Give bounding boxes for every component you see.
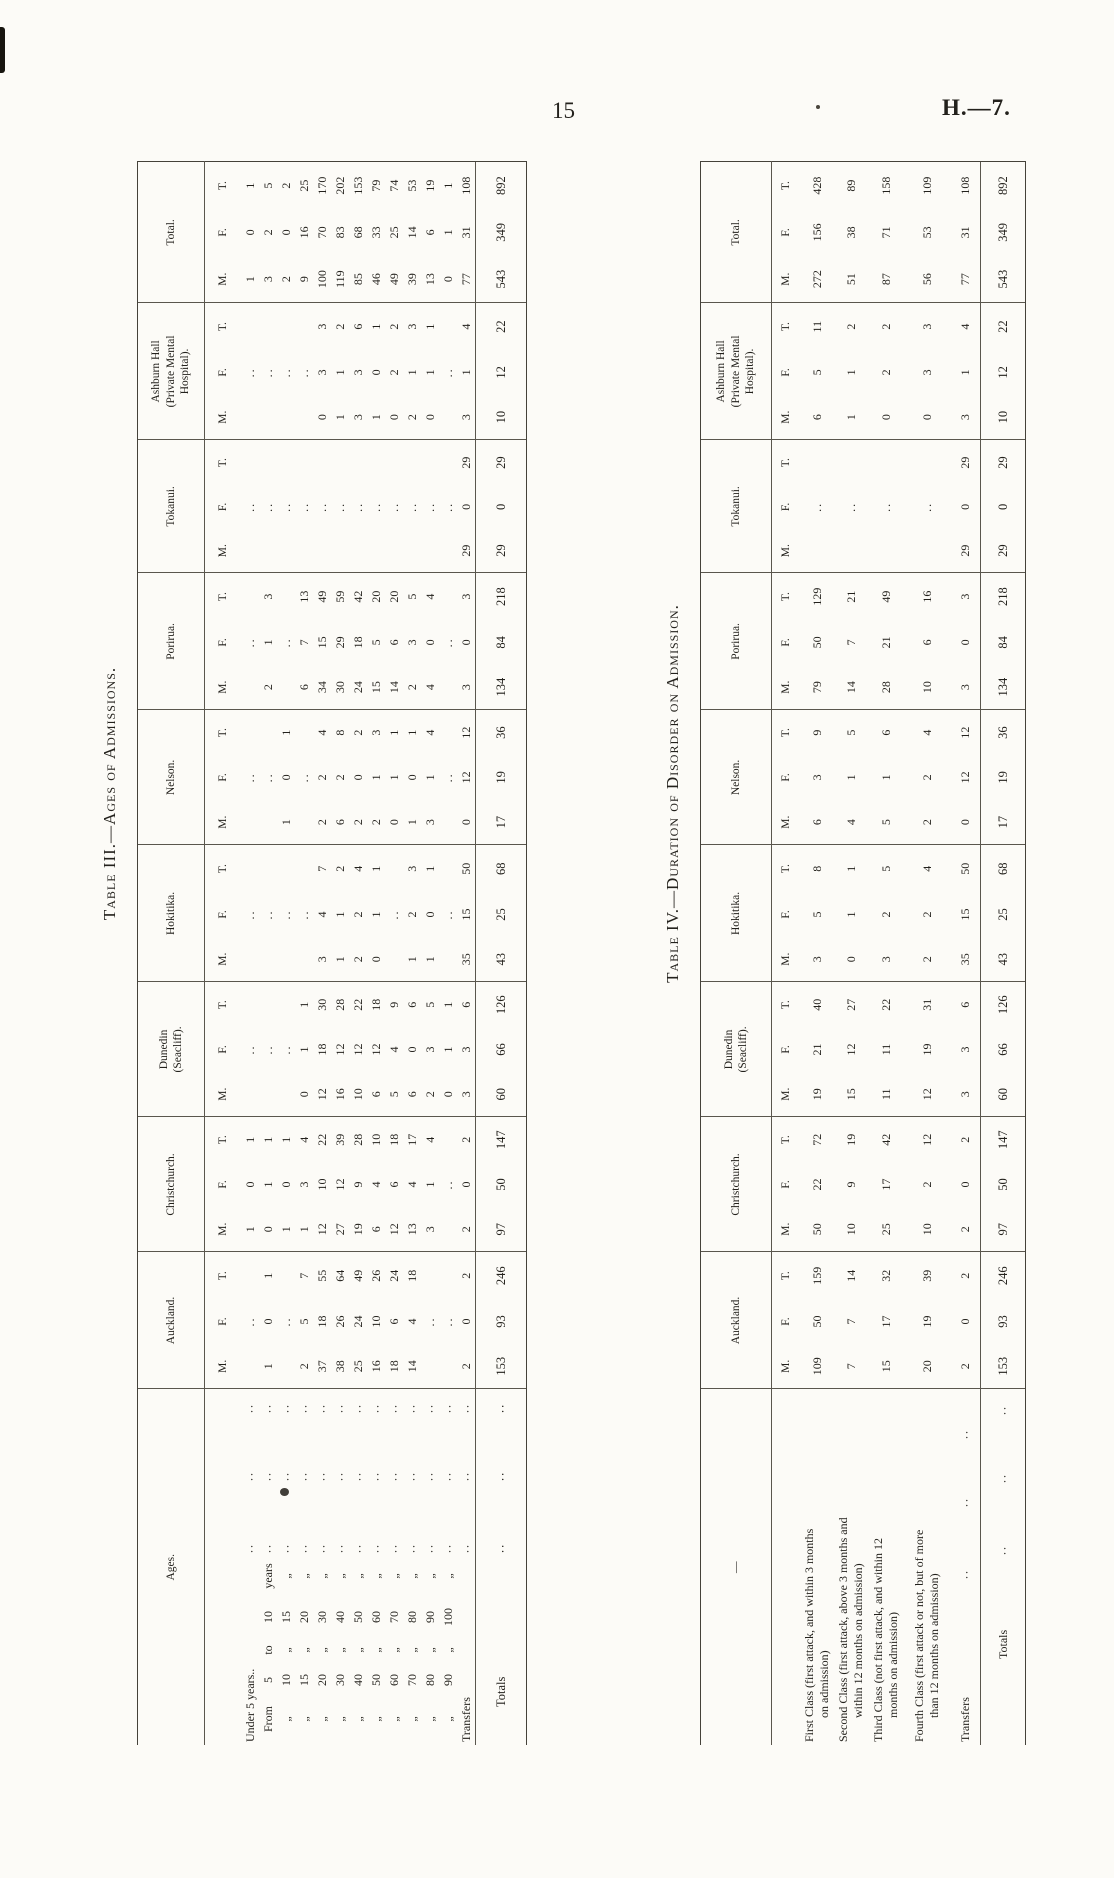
label-seg: „ <box>315 1696 330 1742</box>
leader-dots: .. <box>403 1543 418 1553</box>
cell-nelson-t: 4 <box>421 710 439 755</box>
cell-auckland-m: 7 <box>834 1344 868 1389</box>
cell-nelson-m: 17 <box>476 800 527 845</box>
cell-auckland-t: 18 <box>403 1252 421 1299</box>
cell-ashburn-hall-t: 6 <box>349 303 367 350</box>
cell-nelson-t: 6 <box>868 710 904 755</box>
cell-tokanui-t <box>349 440 367 485</box>
sub-header-nelson-f: F. <box>205 755 242 800</box>
cell-nelson-m <box>439 800 457 845</box>
cell-nelson-t: 4 <box>904 710 950 755</box>
cell-total-t: 2 <box>277 162 295 209</box>
cell-nelson-m: 2 <box>313 800 331 845</box>
cell-dunedin-seacliff-t: 1 <box>295 982 313 1027</box>
cell-tokanui-f: .. <box>367 485 385 529</box>
table3-row-label: Transfers...... <box>457 1389 476 1745</box>
cell-porirua-f: 6 <box>385 620 403 665</box>
sub-header-dunedin-seacliff-f: F. <box>205 1027 242 1072</box>
sub-header-ashburn-hall-t: T. <box>772 303 801 350</box>
cell-christchurch-f: 0 <box>277 1162 295 1207</box>
cell-nelson-m <box>295 800 313 845</box>
leader-dots: .. <box>241 1543 256 1553</box>
cell-dunedin-seacliff-t: 28 <box>331 982 349 1027</box>
cell-hokitika-f: .. <box>295 892 313 937</box>
label-seg: „ <box>315 1636 330 1664</box>
cell-tokanui-t <box>800 440 834 485</box>
cell-ashburn-hall-t: 3 <box>313 303 331 350</box>
cell-ashburn-hall-t: 3 <box>403 303 421 350</box>
cell-hokitika-f: .. <box>241 892 259 937</box>
cell-christchurch-m: 6 <box>367 1207 385 1252</box>
cell-christchurch-m: 2 <box>457 1207 476 1252</box>
cell-total-t: 25 <box>295 162 313 209</box>
cell-total-f: 71 <box>868 209 904 256</box>
leader-dots: .. <box>367 1543 382 1553</box>
label-seg: „ <box>405 1636 420 1664</box>
leader-dots: .. <box>259 1403 274 1413</box>
sub-header-auckland-t: T. <box>205 1252 242 1299</box>
cell-christchurch-m: 12 <box>385 1207 403 1252</box>
cell-porirua-m: 3 <box>457 665 476 710</box>
sub-header-auckland-m: M. <box>772 1344 801 1389</box>
cell-auckland-t: 159 <box>800 1252 834 1299</box>
table4-row-label: First Class (first attack, and within 3 … <box>800 1389 834 1745</box>
cell-nelson-f: .. <box>439 755 457 800</box>
cell-auckland-f: .. <box>277 1299 295 1344</box>
sub-header-total-m: M. <box>772 256 801 303</box>
cell-porirua-t: 129 <box>800 573 834 620</box>
cell-dunedin-seacliff-m: 16 <box>331 1072 349 1117</box>
header-row: —Auckland.Christchurch.Dunedin(Seacliff)… <box>701 162 772 1745</box>
cell-dunedin-seacliff-t: 22 <box>349 982 367 1027</box>
cell-total-t: 202 <box>331 162 349 209</box>
cell-christchurch-m: 3 <box>421 1207 439 1252</box>
scan-edge-mark <box>0 27 5 73</box>
cell-auckland-t: 246 <box>476 1252 527 1299</box>
cell-nelson-f: 1 <box>868 755 904 800</box>
cell-dunedin-seacliff-f: 1 <box>439 1027 457 1072</box>
cell-auckland-f: 93 <box>476 1299 527 1344</box>
label-seg: „ <box>405 1696 420 1742</box>
cell-nelson-f: 2 <box>331 755 349 800</box>
cell-ashburn-hall-m <box>241 395 259 440</box>
cell-auckland-f: 7 <box>834 1299 868 1344</box>
cell-dunedin-seacliff-f: 66 <box>476 1027 527 1072</box>
cell-ashburn-hall-m <box>439 395 457 440</box>
cell-ashburn-hall-t <box>295 303 313 350</box>
cell-hokitika-m <box>439 937 457 982</box>
cell-dunedin-seacliff-f: 3 <box>950 1027 981 1072</box>
cell-tokanui-f: .. <box>904 485 950 529</box>
cell-auckland-f: 24 <box>349 1299 367 1344</box>
cell-christchurch-m: 2 <box>950 1207 981 1252</box>
cell-nelson-m: 0 <box>457 800 476 845</box>
cell-total-f: 349 <box>981 209 1026 256</box>
cell-dunedin-seacliff-t: 27 <box>834 982 868 1027</box>
cell-tokanui-f: .. <box>439 485 457 529</box>
cell-hokitika-m: 3 <box>868 937 904 982</box>
cell-nelson-m: 6 <box>800 800 834 845</box>
sub-header-tokanui-f: F. <box>205 485 242 529</box>
cell-hokitika-m: 2 <box>904 937 950 982</box>
label-text: Fourth Class (first attack or not, but o… <box>912 1530 941 1742</box>
cell-nelson-m: 4 <box>834 800 868 845</box>
cell-hokitika-t: 8 <box>800 845 834 892</box>
cell-auckland-f: .. <box>421 1299 439 1344</box>
table3-row-label: „20„30„...... <box>313 1389 331 1745</box>
cell-total-t: 5 <box>259 162 277 209</box>
cell-dunedin-seacliff-f: 0 <box>403 1027 421 1072</box>
cell-hokitika-m: 43 <box>476 937 527 982</box>
cell-dunedin-seacliff-f: 12 <box>331 1027 349 1072</box>
cell-tokanui-f: .. <box>834 485 868 529</box>
cell-auckland-m: 18 <box>385 1344 403 1389</box>
cell-total-m: 3 <box>259 256 277 303</box>
cell-total-m: 13 <box>421 256 439 303</box>
cell-tokanui-t <box>241 440 259 485</box>
label-seg: „ <box>333 1554 348 1598</box>
cell-auckland-t: 7 <box>295 1252 313 1299</box>
cell-porirua-t: 21 <box>834 573 868 620</box>
header-row: Ages.Auckland.Christchurch.Dunedin(Seacl… <box>138 162 205 1745</box>
cell-nelson-f: .. <box>259 755 277 800</box>
cell-ashburn-hall-t <box>277 303 295 350</box>
cell-porirua-f: .. <box>439 620 457 665</box>
cell-dunedin-seacliff-t: 126 <box>981 982 1026 1027</box>
cell-christchurch-f: 0 <box>950 1162 981 1207</box>
cell-dunedin-seacliff-t: 22 <box>868 982 904 1027</box>
cell-porirua-f: 21 <box>868 620 904 665</box>
cell-hokitika-f: 2 <box>403 892 421 937</box>
cell-auckland-f: 4 <box>403 1299 421 1344</box>
leader-dots: .. <box>259 1543 274 1553</box>
cell-auckland-f: .. <box>439 1299 457 1344</box>
cell-auckland-t: 246 <box>981 1252 1026 1299</box>
cell-dunedin-seacliff-t: 9 <box>385 982 403 1027</box>
cell-auckland-m <box>241 1344 259 1389</box>
cell-christchurch-f: 1 <box>259 1162 277 1207</box>
totals-row: Totals......1539324697501476066126432568… <box>476 162 527 1745</box>
cell-total-f: 16 <box>295 209 313 256</box>
cell-ashburn-hall-m: 3 <box>457 395 476 440</box>
cell-tokanui-m <box>295 529 313 573</box>
cell-total-m: 2 <box>277 256 295 303</box>
cell-tokanui-m <box>439 529 457 573</box>
cell-christchurch-t <box>439 1117 457 1162</box>
cell-hokitika-f: 1 <box>834 892 868 937</box>
table3-row-label: „10„15„...... <box>277 1389 295 1745</box>
cell-ashburn-hall-f: .. <box>295 350 313 395</box>
cell-dunedin-seacliff-f: 3 <box>421 1027 439 1072</box>
cell-christchurch-t: 4 <box>295 1117 313 1162</box>
leader-dots: .. <box>331 1471 346 1481</box>
leader-dots: .. <box>403 1471 418 1481</box>
label-seg: „ <box>297 1696 312 1742</box>
cell-total-f: 68 <box>349 209 367 256</box>
cell-dunedin-seacliff-t: 1 <box>439 982 457 1027</box>
cell-nelson-m: 1 <box>277 800 295 845</box>
cell-auckland-m: 20 <box>904 1344 950 1389</box>
cell-christchurch-t: 1 <box>241 1117 259 1162</box>
cell-porirua-m: 134 <box>476 665 527 710</box>
label-seg: 20 <box>297 1598 312 1636</box>
cell-ashburn-hall-f: 5 <box>800 350 834 395</box>
cell-hokitika-t: 5 <box>868 845 904 892</box>
cell-ashburn-hall-m: 1 <box>367 395 385 440</box>
cell-total-f: 156 <box>800 209 834 256</box>
table4-table: —Auckland.Christchurch.Dunedin(Seacliff)… <box>700 161 1026 1745</box>
label-text: Transfers <box>459 1697 473 1742</box>
cell-auckland-m: 14 <box>403 1344 421 1389</box>
cell-dunedin-seacliff-m: 60 <box>476 1072 527 1117</box>
sub-header-auckland-f: F. <box>772 1299 801 1344</box>
col-header-ashburn-hall: Ashburn Hall(Private MentalHospital). <box>138 303 205 440</box>
sub-header-total-f: F. <box>205 209 242 256</box>
sub-header-dunedin-seacliff-t: T. <box>772 982 801 1027</box>
cell-tokanui-m <box>800 529 834 573</box>
label-text: Second Class (first attack, above 3 mont… <box>836 1517 865 1742</box>
cell-total-f: 6 <box>421 209 439 256</box>
cell-hokitika-f: 0 <box>421 892 439 937</box>
cell-christchurch-f: 1 <box>421 1162 439 1207</box>
cell-hokitika-t <box>385 845 403 892</box>
page-number: 15 <box>552 98 575 124</box>
col-header-auckland: Auckland. <box>138 1252 205 1389</box>
cell-nelson-f: 1 <box>385 755 403 800</box>
cell-tokanui-f: .. <box>277 485 295 529</box>
cell-porirua-f: 7 <box>834 620 868 665</box>
cell-porirua-m: 4 <box>421 665 439 710</box>
cell-porirua-t: 4 <box>421 573 439 620</box>
cell-christchurch-f: 22 <box>800 1162 834 1207</box>
cell-nelson-f: 2 <box>313 755 331 800</box>
sub-header-porirua-m: M. <box>772 665 801 710</box>
cell-nelson-t: 1 <box>277 710 295 755</box>
table-row: „70„80„......1441813417606123101235..213… <box>403 162 421 1745</box>
cell-dunedin-seacliff-m: 12 <box>313 1072 331 1117</box>
label-seg: 20 <box>315 1664 330 1696</box>
cell-christchurch-t: 18 <box>385 1117 403 1162</box>
cell-tokanui-t <box>868 440 904 485</box>
cell-nelson-f: 0 <box>277 755 295 800</box>
cell-porirua-m: 134 <box>981 665 1026 710</box>
sub-header-nelson-m: M. <box>205 800 242 845</box>
cell-hokitika-f: 2 <box>349 892 367 937</box>
cell-total-m: 0 <box>439 256 457 303</box>
cell-auckland-t: 26 <box>367 1252 385 1299</box>
col-header-hokitika: Hokitika. <box>701 845 772 982</box>
label-seg: „ <box>423 1554 438 1598</box>
cell-dunedin-seacliff-f: .. <box>241 1027 259 1072</box>
table4-row-label: Fourth Class (first attack or not, but o… <box>904 1389 950 1745</box>
cell-hokitika-f: 25 <box>476 892 527 937</box>
table4-row-label: Totals...... <box>981 1389 1026 1745</box>
col-header-total: Total. <box>138 162 205 303</box>
cell-auckland-f: 18 <box>313 1299 331 1344</box>
sub-header-hokitika-t: T. <box>205 845 242 892</box>
scanned-report-page: { "page": { "number": "15", "reference":… <box>0 0 1114 1878</box>
label-seg: 10 <box>279 1664 294 1696</box>
cell-auckland-m: 153 <box>981 1344 1026 1389</box>
cell-auckland-m <box>439 1344 457 1389</box>
label-seg: 15 <box>297 1664 312 1696</box>
col-header-tokanui: Tokanui. <box>701 440 772 573</box>
table4-corner-label: — <box>701 1389 772 1745</box>
leader-dots: .. <box>349 1543 364 1553</box>
cell-total-t: 892 <box>476 162 527 209</box>
cell-christchurch-t: 28 <box>349 1117 367 1162</box>
cell-auckland-m: 37 <box>313 1344 331 1389</box>
cell-porirua-m: 2 <box>259 665 277 710</box>
cell-ashburn-hall-m <box>259 395 277 440</box>
cell-porirua-t <box>277 573 295 620</box>
cell-total-m: 46 <box>367 256 385 303</box>
leader-dots: .. <box>439 1543 454 1553</box>
scan-speck <box>816 105 820 109</box>
table-iv-block: Table IV.—Duration of Disorder on Admiss… <box>658 162 1040 1745</box>
cell-dunedin-seacliff-t: 18 <box>367 982 385 1027</box>
cell-total-t: 158 <box>868 162 904 209</box>
cell-auckland-f: 19 <box>904 1299 950 1344</box>
sub-header-ashburn-hall-t: T. <box>205 303 242 350</box>
cell-ashburn-hall-f: 1 <box>421 350 439 395</box>
cell-porirua-f: 15 <box>313 620 331 665</box>
cell-christchurch-m: 1 <box>241 1207 259 1252</box>
cell-hokitika-m: 43 <box>981 937 1026 982</box>
label-seg: „ <box>333 1636 348 1664</box>
table-row: First Class (first attack, and within 3 … <box>800 162 834 1745</box>
cell-christchurch-f: 6 <box>385 1162 403 1207</box>
cell-nelson-t: 1 <box>385 710 403 755</box>
cell-hokitika-t: 2 <box>331 845 349 892</box>
cell-porirua-m: 10 <box>904 665 950 710</box>
cell-nelson-f: 12 <box>457 755 476 800</box>
cell-hokitika-f: 2 <box>904 892 950 937</box>
sub-header-nelson-m: M. <box>772 800 801 845</box>
table-row: „40„50„......252449199281012222242022418… <box>349 162 367 1745</box>
cell-dunedin-seacliff-f: 18 <box>313 1027 331 1072</box>
sub-header-tokanui-f: F. <box>772 485 801 529</box>
cell-nelson-m: 5 <box>868 800 904 845</box>
label-seg: „ <box>351 1696 366 1742</box>
sub-header-christchurch-m: M. <box>205 1207 242 1252</box>
leader-dots: .. <box>995 1473 1010 1483</box>
cell-nelson-m: 0 <box>950 800 981 845</box>
table-iv-title: Table IV.—Duration of Disorder on Admiss… <box>658 162 687 1745</box>
cell-dunedin-seacliff-t: 126 <box>476 982 527 1027</box>
sub-header-hokitika-f: F. <box>772 892 801 937</box>
leader-dots: .. <box>421 1543 436 1553</box>
table-row: Fourth Class (first attack or not, but o… <box>904 162 950 1745</box>
leader-dots: .. <box>313 1471 328 1481</box>
table3-row-label: Totals...... <box>476 1389 527 1745</box>
cell-nelson-t: 9 <box>800 710 834 755</box>
cell-dunedin-seacliff-m: 19 <box>800 1072 834 1117</box>
cell-porirua-t: 5 <box>403 573 421 620</box>
table4-subheader-spacer <box>772 1389 801 1745</box>
sub-header-christchurch-m: M. <box>772 1207 801 1252</box>
cell-porirua-t: 3 <box>950 573 981 620</box>
cell-hokitika-m: 1 <box>331 937 349 982</box>
cell-porirua-m: 79 <box>800 665 834 710</box>
cell-total-t: 892 <box>981 162 1026 209</box>
cell-total-t: 79 <box>367 162 385 209</box>
cell-porirua-m: 3 <box>950 665 981 710</box>
table-row: Transfers......2022023363515500121230329… <box>950 162 981 1745</box>
cell-porirua-m: 15 <box>367 665 385 710</box>
cell-porirua-t <box>439 573 457 620</box>
cell-total-t: 428 <box>800 162 834 209</box>
table-row: „15„20„......257134011....6713....91625 <box>295 162 313 1745</box>
cell-hokitika-f: 4 <box>313 892 331 937</box>
sub-header-total-f: F. <box>772 209 801 256</box>
cell-hokitika-m: 0 <box>834 937 868 982</box>
cell-tokanui-t: 29 <box>981 440 1026 485</box>
cell-porirua-f: 29 <box>331 620 349 665</box>
cell-total-m: 1 <box>241 256 259 303</box>
cell-porirua-f: 84 <box>981 620 1026 665</box>
sub-header-ashburn-hall-f: F. <box>772 350 801 395</box>
cell-ashburn-hall-m <box>295 395 313 440</box>
cell-auckland-m: 2 <box>457 1344 476 1389</box>
label-seg: „ <box>315 1554 330 1598</box>
sub-header-porirua-m: M. <box>205 665 242 710</box>
cell-dunedin-seacliff-m <box>241 1072 259 1117</box>
cell-tokanui-f: 0 <box>981 485 1026 529</box>
cell-tokanui-t <box>277 440 295 485</box>
cell-total-m: 87 <box>868 256 904 303</box>
cell-hokitika-f: 15 <box>457 892 476 937</box>
cell-nelson-m: 17 <box>981 800 1026 845</box>
table3-row-label: „60„70„...... <box>385 1389 403 1745</box>
cell-total-m: 272 <box>800 256 834 303</box>
table3-row-label: „40„50„...... <box>349 1389 367 1745</box>
cell-porirua-f: .. <box>241 620 259 665</box>
label-seg: to <box>261 1636 276 1664</box>
cell-dunedin-seacliff-f: 12 <box>834 1027 868 1072</box>
cell-auckland-t: 14 <box>834 1252 868 1299</box>
label-seg: „ <box>351 1636 366 1664</box>
table-iv-mount: —Auckland.Christchurch.Dunedin(Seacliff)… <box>700 162 1026 1745</box>
leader-dots: .. <box>995 1405 1010 1415</box>
table3-corner-label: Ages. <box>138 1389 205 1745</box>
cell-ashburn-hall-m: 10 <box>981 395 1026 440</box>
cell-porirua-t: 59 <box>331 573 349 620</box>
cell-hokitika-t <box>259 845 277 892</box>
cell-ashburn-hall-f: .. <box>241 350 259 395</box>
leader-dots: .. <box>277 1471 292 1481</box>
table-row: „90„100„..........011..........011 <box>439 162 457 1745</box>
cell-total-f: 1 <box>439 209 457 256</box>
cell-hokitika-m: 35 <box>950 937 981 982</box>
cell-auckland-f: 6 <box>385 1299 403 1344</box>
cell-ashburn-hall-f: .. <box>277 350 295 395</box>
cell-christchurch-t: 12 <box>904 1117 950 1162</box>
leader-dots: .. <box>295 1403 310 1413</box>
cell-auckland-t: 49 <box>349 1252 367 1299</box>
label-seg: 60 <box>369 1598 384 1636</box>
cell-total-m: 77 <box>457 256 476 303</box>
label-text: Totals <box>996 1630 1010 1659</box>
cell-porirua-f: 0 <box>421 620 439 665</box>
cell-ashburn-hall-m <box>277 395 295 440</box>
cell-total-f: 14 <box>403 209 421 256</box>
totals-row: Totals......1539324697501476066126432568… <box>981 162 1026 1745</box>
sub-header-hokitika-m: M. <box>772 937 801 982</box>
cell-porirua-m: 28 <box>868 665 904 710</box>
cell-hokitika-f: .. <box>259 892 277 937</box>
cell-tokanui-m: 29 <box>981 529 1026 573</box>
